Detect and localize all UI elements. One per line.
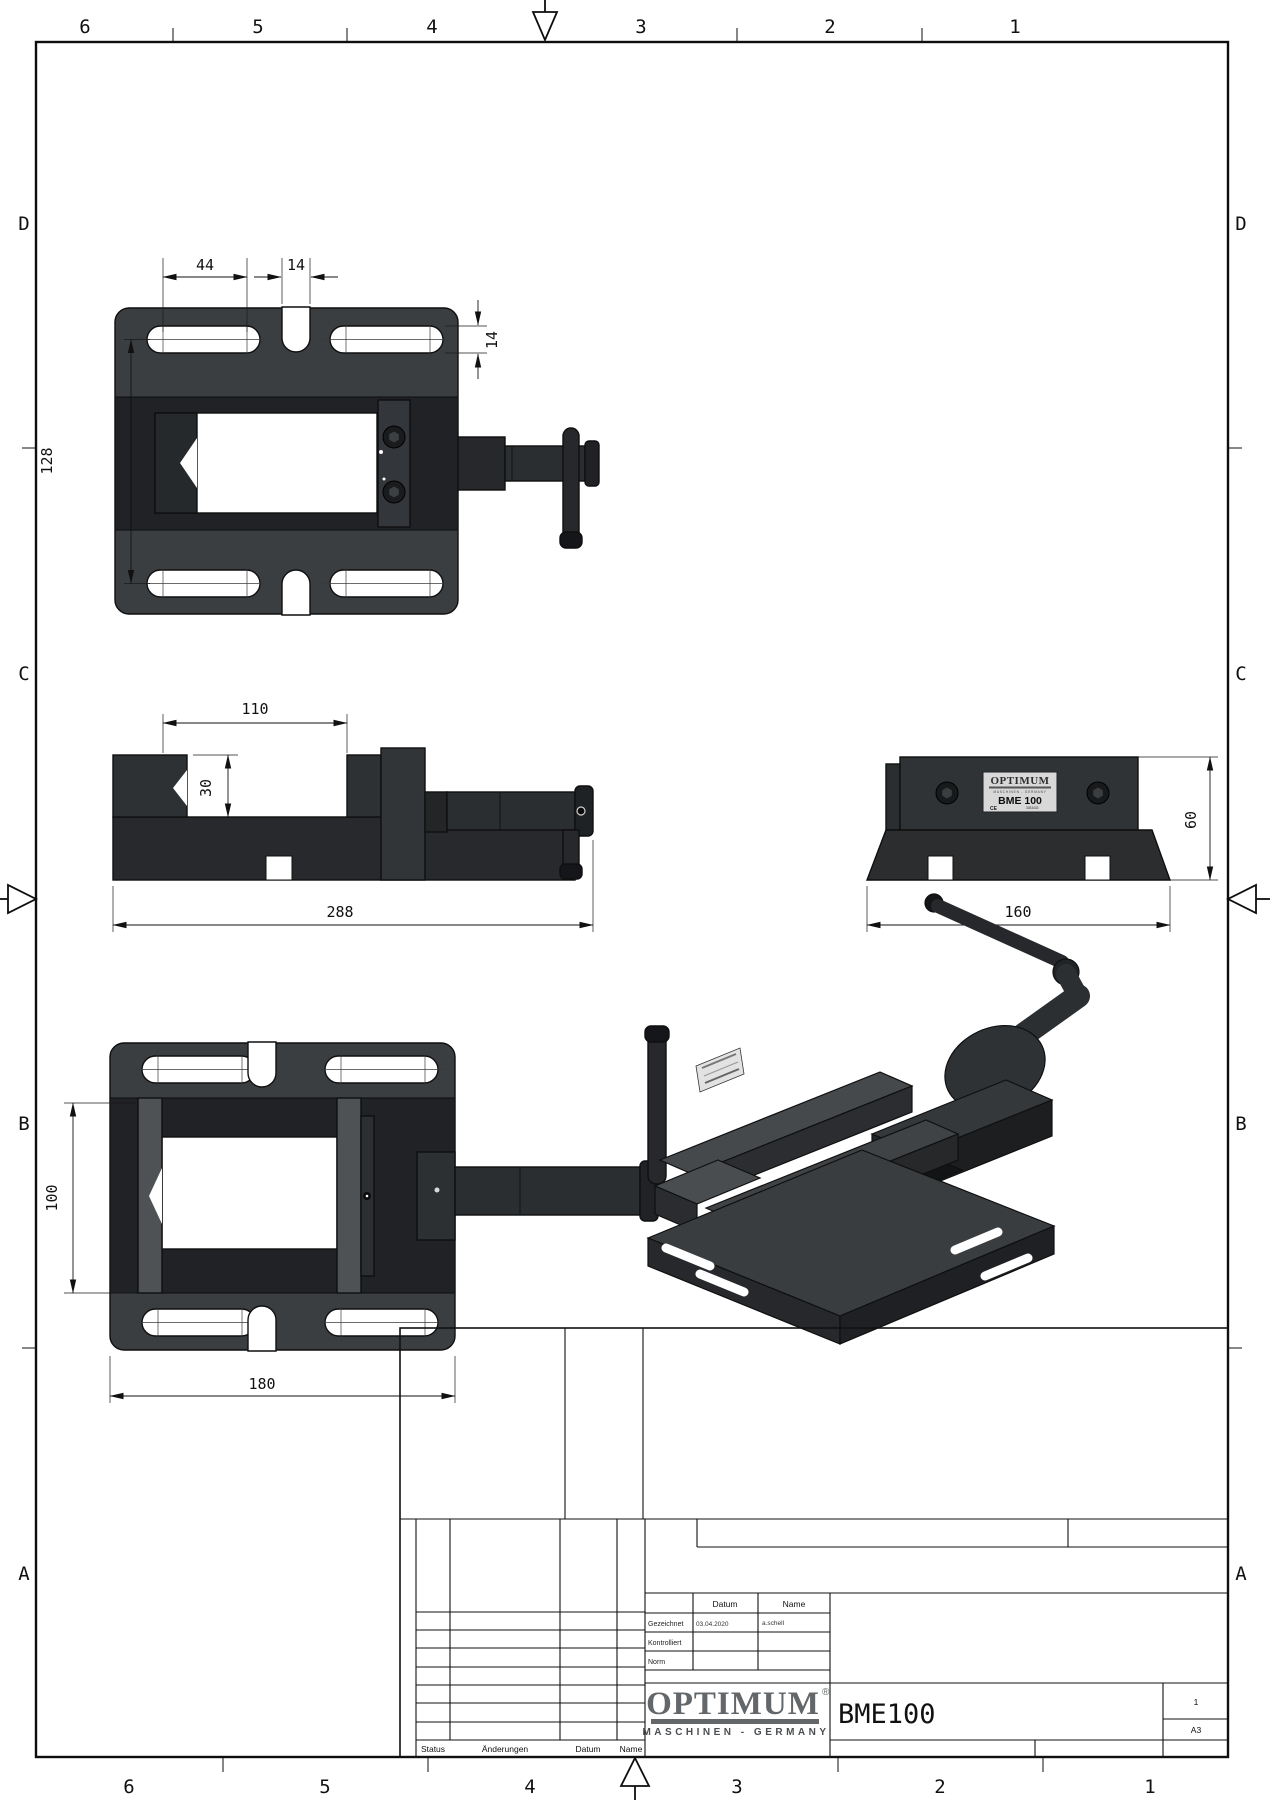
dim-jaw-opening: 110 — [163, 700, 347, 753]
nameplate: OPTIMUM MASCHINEN - GERMANY BME 100 CE 3… — [983, 772, 1057, 812]
dim-jaw-depth: 30 — [193, 755, 238, 817]
top-view: 44 14 14 128 — [38, 256, 599, 615]
zone-bottom-1: 1 — [1144, 1776, 1155, 1798]
tb-header-datum: Datum — [712, 1599, 737, 1609]
center-mark-right — [1228, 885, 1270, 913]
svg-text:288: 288 — [326, 903, 353, 921]
iso-nameplate — [696, 1048, 744, 1092]
ce-mark: CE — [990, 806, 998, 812]
nameplate-brand: OPTIMUM — [990, 775, 1049, 787]
svg-text:100: 100 — [43, 1184, 61, 1211]
title-block: Datum Name Gezeichnet 03.04.2020 a.schel… — [400, 1328, 1228, 1757]
company-logo: OPTIMUM ® MASCHINEN - GERMANY — [642, 1686, 830, 1738]
dim-body-width: 160 — [867, 886, 1170, 932]
logo-registered-mark: ® — [822, 1687, 830, 1698]
tb-label-name2: Name — [620, 1744, 643, 1754]
hex-screw — [1087, 782, 1109, 804]
end-view: OPTIMUM MASCHINEN - GERMANY BME 100 CE 3… — [867, 757, 1218, 932]
zone-right-A: A — [1235, 1563, 1247, 1585]
zone-top-6: 6 — [79, 16, 90, 38]
dim-notch-width: 14 — [254, 256, 338, 304]
tb-label-gezeichnet: Gezeichnet — [648, 1621, 683, 1628]
titleblock-format: A3 — [1191, 1725, 1202, 1735]
svg-text:44: 44 — [196, 256, 214, 274]
svg-text:180: 180 — [248, 1375, 275, 1393]
tb-header-name: Name — [783, 1599, 806, 1609]
isometric-view — [648, 894, 1079, 1344]
center-mark-bottom — [621, 1758, 649, 1800]
nameplate-serial: 3053433 — [1026, 806, 1039, 810]
dim-base-length: 180 — [110, 1356, 455, 1403]
svg-text:110: 110 — [241, 700, 268, 718]
zone-right-B: B — [1235, 1113, 1246, 1135]
svg-text:30: 30 — [197, 779, 215, 797]
tb-label-norm: Norm — [648, 1659, 665, 1666]
zone-bottom-2: 2 — [934, 1776, 945, 1798]
center-mark-left — [0, 885, 36, 913]
zone-left-D: D — [18, 213, 29, 235]
svg-text:14: 14 — [483, 331, 501, 349]
titleblock-sheet-number: 1 — [1194, 1697, 1199, 1707]
zone-top-1: 1 — [1009, 16, 1020, 38]
svg-text:128: 128 — [38, 447, 56, 474]
tb-label-datum2: Datum — [575, 1744, 600, 1754]
zone-top-2: 2 — [824, 16, 835, 38]
titleblock-part-number: BME100 — [838, 1699, 936, 1730]
svg-text:60: 60 — [1182, 811, 1200, 829]
tb-label-status: Status — [421, 1744, 445, 1754]
zone-left-B: B — [18, 1113, 29, 1135]
zone-left-A: A — [18, 1563, 30, 1585]
svg-text:14: 14 — [287, 256, 305, 274]
zone-bottom-5: 5 — [319, 1776, 330, 1798]
svg-text:160: 160 — [1004, 903, 1031, 921]
zone-right-C: C — [1235, 663, 1246, 685]
tb-label-kontrolliert: Kontrolliert — [648, 1640, 682, 1647]
hex-screw — [936, 782, 958, 804]
tb-label-aenderungen: Änderungen — [482, 1744, 529, 1754]
zone-bottom-6: 6 — [123, 1776, 134, 1798]
zone-bottom-4: 4 — [524, 1776, 535, 1798]
zone-right-D: D — [1235, 213, 1246, 235]
zone-top-4: 4 — [426, 16, 437, 38]
logo-tagline: MASCHINEN - GERMANY — [642, 1727, 829, 1738]
nameplate-tagline: MASCHINEN - GERMANY — [993, 790, 1046, 794]
logo-brand: OPTIMUM — [646, 1686, 820, 1722]
bottom-view: 100 180 — [43, 1026, 669, 1403]
drawing-sheet: 6 5 4 3 2 1 6 5 4 3 2 1 D C B A D C B A — [0, 0, 1273, 1800]
center-mark-top — [533, 0, 557, 40]
side-view: 110 30 288 — [113, 700, 593, 932]
jaw-screw — [383, 481, 405, 503]
tb-value-drawn-name: a.schell — [762, 1620, 785, 1627]
zone-bottom-3: 3 — [731, 1776, 742, 1798]
zone-top-3: 3 — [635, 16, 646, 38]
jaw-screw — [383, 426, 405, 448]
border-frame: 6 5 4 3 2 1 6 5 4 3 2 1 D C B A D C B A — [0, 0, 1270, 1800]
zone-top-5: 5 — [252, 16, 263, 38]
zone-left-C: C — [18, 663, 29, 685]
tb-value-drawn-date: 03.04.2020 — [696, 1621, 729, 1628]
